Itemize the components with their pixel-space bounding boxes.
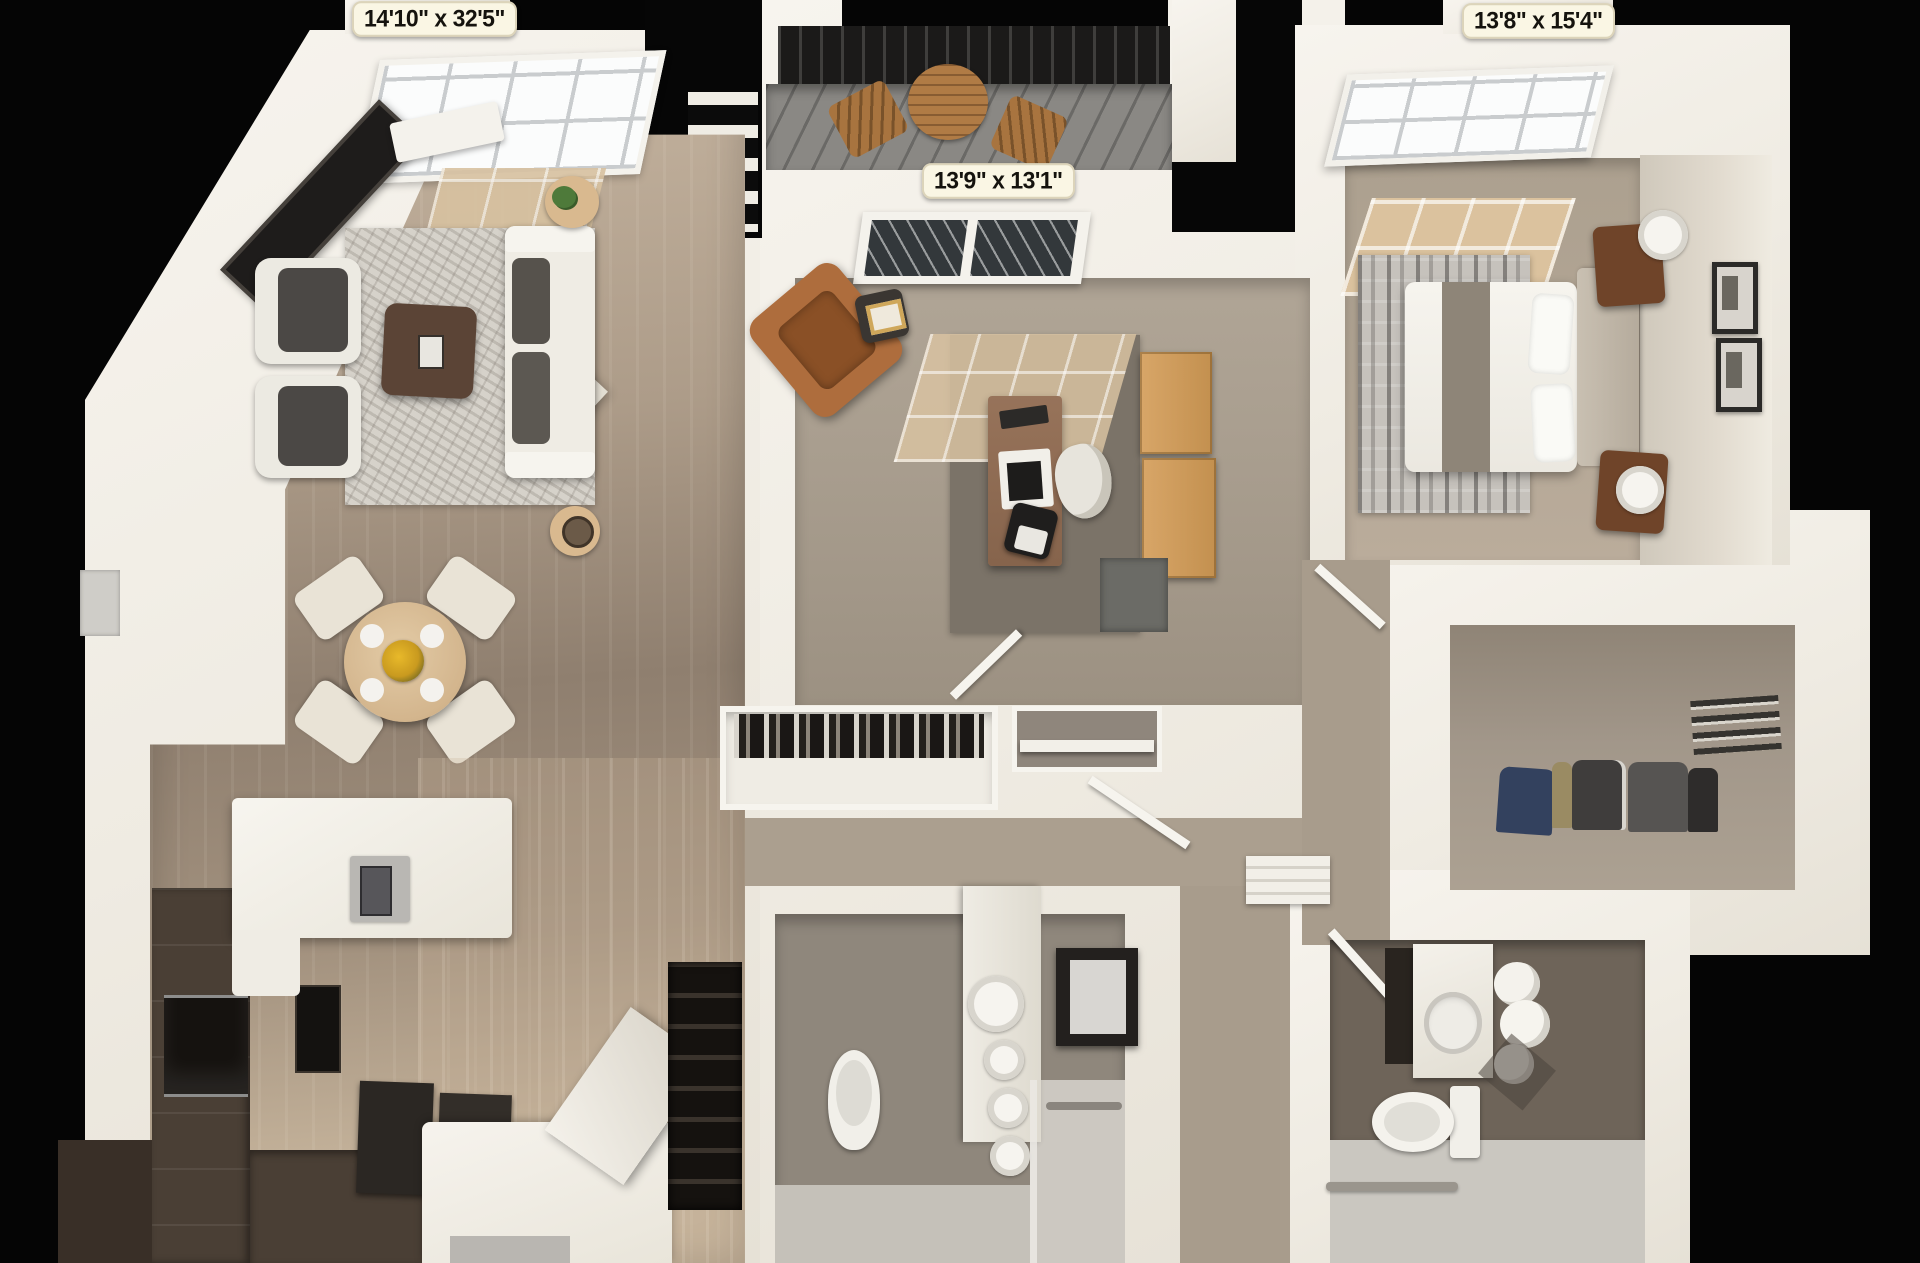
towel-roll-1 (1494, 962, 1540, 1006)
shower-2-drain (1326, 1182, 1458, 1191)
dining-centerpiece-flowers (382, 640, 424, 682)
kitchen-island-leg (232, 930, 300, 996)
bed-runner (1442, 282, 1490, 472)
closet-clothes-3 (1572, 760, 1626, 830)
closet-clothes-4 (1628, 762, 1688, 832)
pantry-shelf (668, 962, 742, 1210)
desk-laptop-screen (1007, 461, 1044, 501)
bedroom-window (1324, 65, 1614, 166)
dining-plate-1 (360, 624, 384, 648)
sofa-arm-top (505, 226, 595, 252)
storage-cabinet-1 (1140, 352, 1212, 454)
shower-1-drain (1046, 1102, 1122, 1110)
lamp-1 (1638, 210, 1688, 260)
bedroom-dimensions-label: 13'8" x 15'4" (1462, 3, 1615, 39)
armchair-2-cushion (278, 386, 348, 466)
hallway-pocket-floor (1180, 886, 1290, 1263)
island-cooktop-inner (360, 866, 392, 916)
vanity-2-cabinet (1385, 948, 1413, 1064)
peninsula-front-panel (450, 1236, 570, 1263)
office-window-pane-right (970, 220, 1078, 276)
plant (552, 186, 576, 208)
closet-clothes-5 (1688, 768, 1718, 832)
bed-pillow-2 (1530, 383, 1576, 463)
towel-ring-2 (988, 1088, 1028, 1128)
closet-floor (1450, 625, 1795, 890)
toilet-2-seat (1384, 1102, 1440, 1142)
sofa-arm-bottom (505, 452, 595, 478)
den-dimensions-label: 13'9" x 13'1" (922, 163, 1075, 199)
hall-closet-shelf (1020, 740, 1154, 752)
dining-plate-4 (420, 678, 444, 702)
built-in-microwave (295, 985, 341, 1073)
wall-pillar-patio (1172, 0, 1236, 162)
kitchen-dark-floor-sliver (58, 1140, 152, 1263)
armchair-1-cushion (278, 268, 348, 352)
hallway-floor (745, 818, 1310, 886)
shower-1-glass (1030, 1080, 1037, 1263)
bed-pillow-1 (1527, 293, 1574, 376)
towel-ring-1 (984, 1040, 1024, 1080)
closet-clothes-2 (1552, 762, 1572, 828)
toilet-1-seat (836, 1060, 872, 1126)
hall-closet-niche (1012, 706, 1162, 772)
wall-art-1-print (1722, 276, 1738, 310)
floor-plan-stage: 14'10" x 32'5" 13'9" x 13'1" 13'8" x 15'… (0, 0, 1920, 1263)
office-wall-tv (1100, 558, 1168, 632)
dining-plate-2 (420, 624, 444, 648)
coffee-table-decor (418, 335, 444, 369)
living-room-dimensions-label: 14'10" x 32'5" (352, 1, 517, 37)
patio-table (908, 64, 988, 140)
toilet-2-tank (1450, 1086, 1480, 1158)
vanity-1-mirror (968, 976, 1024, 1032)
washer-door (1070, 960, 1126, 1034)
towel-ring-3 (990, 1136, 1030, 1176)
wall-oven-stack (164, 995, 248, 1097)
sofa-pillow-1 (512, 258, 550, 344)
vanity-2-sink (1424, 992, 1482, 1054)
wall-art-2-print (1726, 352, 1742, 388)
dining-plate-3 (360, 678, 384, 702)
closet-clothes-1 (1496, 766, 1556, 836)
closet-shelf-rack (1690, 695, 1782, 755)
side-table-decor (562, 516, 594, 548)
lamp-2 (1616, 466, 1664, 514)
linen-shelf (1246, 856, 1330, 904)
bathroom1-floor-light (775, 1185, 1030, 1263)
bookshelf-books (734, 714, 984, 758)
left-wall-ledge (80, 570, 120, 636)
bathroom2-floor-light (1330, 1140, 1645, 1263)
sofa-pillow-2 (512, 352, 550, 444)
office-window-pane-left (864, 220, 968, 276)
